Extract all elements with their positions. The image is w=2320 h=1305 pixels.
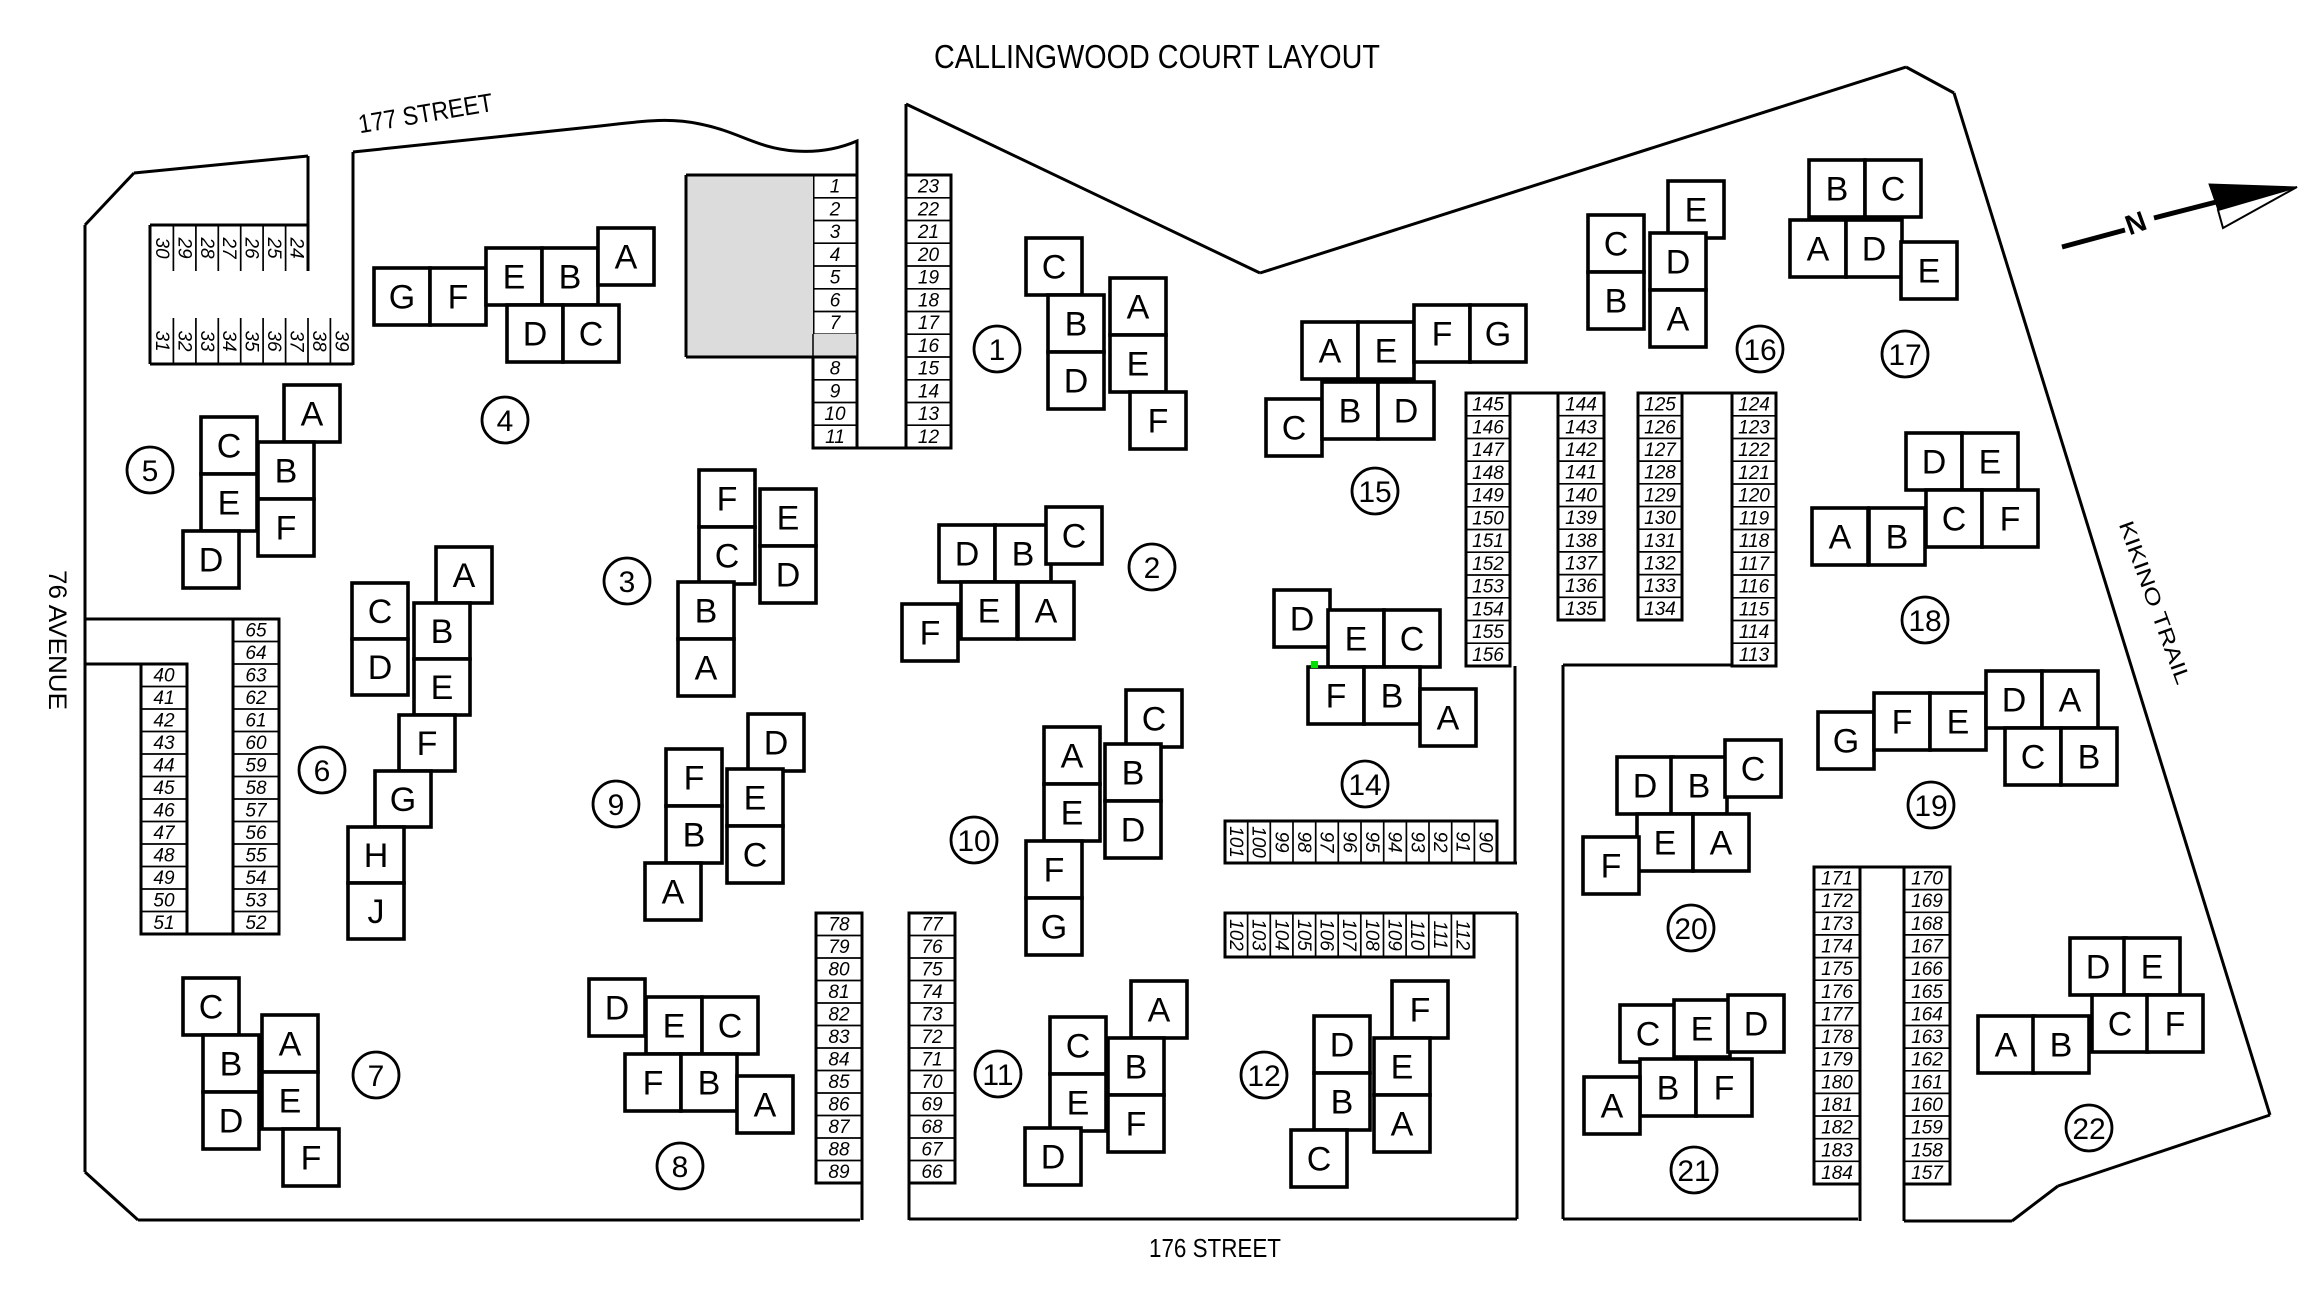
svg-text:72: 72 xyxy=(921,1027,943,1048)
svg-text:94: 94 xyxy=(1384,831,1405,852)
svg-text:C: C xyxy=(1066,1028,1091,1066)
svg-text:20: 20 xyxy=(917,245,940,266)
svg-text:D: D xyxy=(1041,1139,1066,1177)
svg-text:125: 125 xyxy=(1644,395,1676,416)
svg-text:E: E xyxy=(279,1083,302,1121)
svg-text:115: 115 xyxy=(1739,599,1770,620)
svg-text:123: 123 xyxy=(1738,417,1770,438)
svg-text:158: 158 xyxy=(1911,1140,1943,1161)
svg-text:C: C xyxy=(715,538,740,576)
svg-text:63: 63 xyxy=(245,666,267,687)
svg-text:83: 83 xyxy=(828,1027,850,1048)
svg-text:D: D xyxy=(2086,949,2111,987)
svg-text:143: 143 xyxy=(1565,417,1597,438)
svg-text:24: 24 xyxy=(286,236,307,258)
svg-text:33: 33 xyxy=(196,330,217,352)
svg-text:F: F xyxy=(2000,501,2021,539)
svg-text:D: D xyxy=(2002,682,2027,720)
svg-text:131: 131 xyxy=(1644,531,1676,552)
svg-text:67: 67 xyxy=(921,1140,944,1161)
svg-text:29: 29 xyxy=(173,236,194,259)
svg-text:D: D xyxy=(1862,231,1887,269)
svg-text:A: A xyxy=(695,650,718,688)
svg-text:D: D xyxy=(1330,1027,1355,1065)
svg-text:17: 17 xyxy=(1888,339,1921,372)
svg-text:E: E xyxy=(663,1008,686,1046)
svg-text:118: 118 xyxy=(1739,531,1770,552)
svg-text:B: B xyxy=(698,1065,721,1103)
svg-text:95: 95 xyxy=(1361,831,1382,853)
svg-text:B: B xyxy=(275,453,298,491)
svg-text:E: E xyxy=(431,669,454,707)
svg-text:14: 14 xyxy=(1348,769,1381,802)
svg-text:46: 46 xyxy=(153,801,175,822)
svg-text:183: 183 xyxy=(1821,1140,1853,1161)
svg-text:31: 31 xyxy=(151,330,172,351)
svg-text:53: 53 xyxy=(245,891,267,912)
svg-text:35: 35 xyxy=(241,330,262,352)
svg-text:23: 23 xyxy=(917,177,940,198)
svg-text:114: 114 xyxy=(1739,622,1769,643)
svg-text:82: 82 xyxy=(828,1005,850,1026)
svg-text:E: E xyxy=(1345,621,1368,659)
svg-text:A: A xyxy=(1437,700,1460,738)
svg-text:75: 75 xyxy=(921,960,943,981)
svg-text:E: E xyxy=(503,259,526,297)
svg-text:27: 27 xyxy=(218,236,239,260)
svg-text:74: 74 xyxy=(921,982,942,1003)
svg-text:E: E xyxy=(2141,949,2164,987)
svg-text:A: A xyxy=(1601,1088,1624,1126)
svg-text:32: 32 xyxy=(173,330,194,352)
svg-text:10: 10 xyxy=(957,825,990,858)
svg-text:19: 19 xyxy=(1914,790,1947,823)
svg-text:CALLINGWOOD COURT LAYOUT: CALLINGWOOD COURT LAYOUT xyxy=(934,38,1380,75)
svg-text:135: 135 xyxy=(1565,599,1597,620)
svg-text:F: F xyxy=(448,279,469,317)
svg-text:161: 161 xyxy=(1911,1072,1943,1093)
svg-text:A: A xyxy=(615,239,638,277)
svg-text:B: B xyxy=(220,1046,243,1084)
svg-text:E: E xyxy=(744,780,767,818)
svg-text:8: 8 xyxy=(830,359,841,380)
svg-text:F: F xyxy=(276,510,297,548)
svg-text:F: F xyxy=(1126,1106,1147,1144)
svg-text:G: G xyxy=(1833,723,1859,761)
svg-text:21: 21 xyxy=(1677,1155,1710,1188)
svg-text:44: 44 xyxy=(153,756,174,777)
svg-text:E: E xyxy=(218,485,241,523)
svg-text:16: 16 xyxy=(918,336,940,357)
svg-text:3: 3 xyxy=(830,222,841,243)
svg-text:119: 119 xyxy=(1739,508,1770,529)
svg-text:172: 172 xyxy=(1821,891,1853,912)
svg-text:22: 22 xyxy=(917,199,940,220)
svg-text:134: 134 xyxy=(1644,599,1676,620)
svg-text:G: G xyxy=(390,781,416,819)
svg-text:100: 100 xyxy=(1248,826,1269,858)
svg-text:132: 132 xyxy=(1644,554,1676,575)
svg-text:F: F xyxy=(1044,852,1065,890)
svg-text:121: 121 xyxy=(1738,463,1770,484)
svg-text:182: 182 xyxy=(1821,1118,1853,1139)
svg-text:F: F xyxy=(301,1140,322,1178)
svg-text:176 STREET: 176 STREET xyxy=(1149,1233,1281,1263)
svg-text:F: F xyxy=(1892,704,1913,742)
svg-text:78: 78 xyxy=(828,915,850,936)
svg-text:26: 26 xyxy=(241,236,262,259)
svg-text:E: E xyxy=(1061,795,1084,833)
svg-text:F: F xyxy=(2165,1006,2186,1044)
svg-text:C: C xyxy=(217,428,242,466)
svg-text:C: C xyxy=(1741,751,1766,789)
svg-text:F: F xyxy=(684,760,705,798)
svg-text:39: 39 xyxy=(330,330,351,352)
svg-text:B: B xyxy=(1065,306,1088,344)
svg-text:59: 59 xyxy=(245,756,267,777)
svg-text:C: C xyxy=(368,593,393,631)
svg-text:171: 171 xyxy=(1821,869,1853,890)
svg-text:97: 97 xyxy=(1316,831,1337,854)
svg-text:B: B xyxy=(431,613,454,651)
svg-text:D: D xyxy=(764,725,789,763)
svg-text:159: 159 xyxy=(1911,1118,1943,1139)
svg-text:51: 51 xyxy=(153,913,174,934)
svg-text:7: 7 xyxy=(368,1060,385,1093)
svg-text:A: A xyxy=(1829,519,1852,557)
svg-text:165: 165 xyxy=(1911,982,1943,1003)
svg-text:103: 103 xyxy=(1248,919,1269,951)
svg-text:57: 57 xyxy=(245,801,268,822)
svg-text:169: 169 xyxy=(1911,891,1943,912)
svg-text:62: 62 xyxy=(245,688,267,709)
svg-text:107: 107 xyxy=(1338,919,1359,952)
svg-text:55: 55 xyxy=(245,846,267,867)
svg-text:109: 109 xyxy=(1384,919,1405,951)
svg-text:A: A xyxy=(301,396,324,434)
svg-text:C: C xyxy=(718,1008,743,1046)
svg-text:D: D xyxy=(605,990,630,1028)
svg-text:173: 173 xyxy=(1821,914,1853,935)
svg-text:E: E xyxy=(1691,1011,1714,1049)
svg-text:E: E xyxy=(978,593,1001,631)
svg-text:60: 60 xyxy=(245,733,267,754)
svg-text:117: 117 xyxy=(1739,554,1771,575)
svg-text:86: 86 xyxy=(828,1095,850,1116)
svg-text:A: A xyxy=(1148,992,1171,1030)
svg-text:101: 101 xyxy=(1225,826,1246,858)
svg-text:130: 130 xyxy=(1644,508,1676,529)
svg-text:A: A xyxy=(1061,738,1084,776)
svg-text:155: 155 xyxy=(1472,622,1504,643)
svg-text:D: D xyxy=(1922,444,1947,482)
svg-text:73: 73 xyxy=(921,1005,943,1026)
svg-text:A: A xyxy=(754,1087,777,1125)
svg-text:42: 42 xyxy=(153,711,175,732)
svg-text:F: F xyxy=(643,1065,664,1103)
svg-text:B: B xyxy=(683,817,706,855)
svg-text:C: C xyxy=(1636,1016,1661,1054)
svg-text:162: 162 xyxy=(1911,1050,1943,1071)
svg-text:11: 11 xyxy=(825,427,845,448)
svg-text:C: C xyxy=(579,316,604,354)
svg-text:J: J xyxy=(368,893,385,931)
svg-text:E: E xyxy=(1067,1085,1090,1123)
svg-text:152: 152 xyxy=(1472,554,1504,575)
svg-text:F: F xyxy=(1410,992,1431,1030)
svg-text:A: A xyxy=(453,557,476,595)
svg-text:52: 52 xyxy=(245,913,267,934)
svg-text:6: 6 xyxy=(314,755,331,788)
svg-text:12: 12 xyxy=(918,427,940,448)
svg-text:154: 154 xyxy=(1472,599,1504,620)
svg-text:160: 160 xyxy=(1911,1095,1943,1116)
svg-text:4: 4 xyxy=(830,245,841,266)
svg-text:C: C xyxy=(1400,621,1425,659)
svg-text:C: C xyxy=(1282,410,1307,448)
svg-text:40: 40 xyxy=(153,666,175,687)
svg-text:106: 106 xyxy=(1316,919,1337,951)
svg-text:50: 50 xyxy=(153,891,175,912)
svg-text:D: D xyxy=(1290,601,1315,639)
svg-text:65: 65 xyxy=(245,621,267,642)
svg-text:B: B xyxy=(2078,739,2101,777)
svg-text:E: E xyxy=(1375,333,1398,371)
svg-text:18: 18 xyxy=(1908,605,1941,638)
svg-text:A: A xyxy=(1667,301,1690,339)
svg-text:77: 77 xyxy=(921,915,944,936)
svg-text:B: B xyxy=(1886,519,1909,557)
svg-text:184: 184 xyxy=(1821,1163,1853,1184)
svg-text:81: 81 xyxy=(828,982,849,1003)
svg-text:A: A xyxy=(279,1026,302,1064)
svg-text:A: A xyxy=(2059,682,2082,720)
svg-text:163: 163 xyxy=(1911,1027,1943,1048)
svg-text:49: 49 xyxy=(153,868,175,889)
svg-text:38: 38 xyxy=(308,330,329,352)
svg-text:D: D xyxy=(1633,768,1658,806)
svg-text:54: 54 xyxy=(245,868,266,889)
svg-text:166: 166 xyxy=(1911,959,1943,980)
svg-text:D: D xyxy=(1064,363,1089,401)
svg-text:3: 3 xyxy=(619,566,636,599)
svg-text:148: 148 xyxy=(1472,463,1504,484)
svg-text:13: 13 xyxy=(918,404,940,425)
svg-text:144: 144 xyxy=(1565,395,1597,416)
svg-text:H: H xyxy=(364,837,389,875)
svg-text:116: 116 xyxy=(1739,577,1770,598)
svg-text:66: 66 xyxy=(921,1162,943,1183)
svg-text:D: D xyxy=(1744,1006,1769,1044)
svg-text:147: 147 xyxy=(1472,440,1505,461)
svg-text:99: 99 xyxy=(1270,831,1291,853)
svg-text:87: 87 xyxy=(828,1117,851,1138)
svg-text:127: 127 xyxy=(1644,440,1677,461)
svg-text:25: 25 xyxy=(263,236,284,259)
svg-text:C: C xyxy=(2108,1006,2133,1044)
svg-text:F: F xyxy=(1326,678,1347,716)
svg-text:D: D xyxy=(776,557,801,595)
svg-text:14: 14 xyxy=(918,381,939,402)
svg-text:149: 149 xyxy=(1472,486,1504,507)
svg-text:D: D xyxy=(199,542,224,580)
svg-text:D: D xyxy=(955,536,980,574)
svg-text:61: 61 xyxy=(245,711,266,732)
svg-text:76: 76 xyxy=(921,937,943,958)
svg-text:C: C xyxy=(743,837,768,875)
svg-text:A: A xyxy=(1807,231,1830,269)
svg-text:168: 168 xyxy=(1911,914,1943,935)
svg-text:174: 174 xyxy=(1821,937,1853,958)
svg-text:1: 1 xyxy=(830,177,841,198)
svg-text:176: 176 xyxy=(1821,982,1853,1003)
svg-text:84: 84 xyxy=(828,1050,849,1071)
svg-text:153: 153 xyxy=(1472,577,1504,598)
svg-text:146: 146 xyxy=(1472,417,1504,438)
svg-text:93: 93 xyxy=(1406,831,1427,853)
svg-text:105: 105 xyxy=(1293,919,1314,951)
svg-text:B: B xyxy=(1657,1070,1680,1108)
svg-text:90: 90 xyxy=(1474,831,1495,853)
svg-text:177: 177 xyxy=(1821,1004,1854,1025)
svg-text:C: C xyxy=(1942,501,1967,539)
svg-text:21: 21 xyxy=(917,222,939,243)
svg-text:122: 122 xyxy=(1738,440,1770,461)
svg-text:22: 22 xyxy=(2072,1113,2105,1146)
svg-text:41: 41 xyxy=(153,688,174,709)
svg-text:137: 137 xyxy=(1565,554,1598,575)
svg-text:92: 92 xyxy=(1429,831,1450,853)
svg-text:128: 128 xyxy=(1644,463,1676,484)
svg-text:120: 120 xyxy=(1738,486,1770,507)
svg-text:30: 30 xyxy=(151,237,172,259)
svg-text:D: D xyxy=(1121,812,1146,850)
svg-text:B: B xyxy=(2050,1027,2073,1065)
svg-text:B: B xyxy=(1339,393,1362,431)
svg-text:178: 178 xyxy=(1821,1027,1853,1048)
svg-text:139: 139 xyxy=(1565,508,1597,529)
svg-text:91: 91 xyxy=(1452,831,1473,852)
svg-text:4: 4 xyxy=(497,405,514,438)
svg-text:B: B xyxy=(1605,283,1628,321)
svg-text:16: 16 xyxy=(1743,334,1776,367)
svg-text:157: 157 xyxy=(1911,1163,1944,1184)
svg-text:15: 15 xyxy=(918,359,940,380)
svg-text:A: A xyxy=(1319,333,1342,371)
svg-text:20: 20 xyxy=(1674,913,1707,946)
svg-text:B: B xyxy=(559,259,582,297)
svg-text:7: 7 xyxy=(830,313,842,334)
svg-text:43: 43 xyxy=(153,733,175,754)
svg-text:69: 69 xyxy=(921,1095,943,1116)
svg-text:C: C xyxy=(1062,518,1087,556)
svg-text:2: 2 xyxy=(1144,552,1161,585)
svg-text:71: 71 xyxy=(921,1050,942,1071)
svg-text:136: 136 xyxy=(1565,576,1597,597)
svg-text:A: A xyxy=(1710,825,1733,863)
svg-text:112: 112 xyxy=(1451,920,1472,951)
svg-text:5: 5 xyxy=(830,268,841,289)
svg-text:A: A xyxy=(1995,1027,2018,1065)
svg-text:111: 111 xyxy=(1429,921,1450,950)
svg-text:B: B xyxy=(1012,536,1035,574)
svg-text:140: 140 xyxy=(1565,485,1597,506)
svg-text:E: E xyxy=(1127,346,1150,384)
svg-text:179: 179 xyxy=(1821,1050,1853,1071)
svg-text:E: E xyxy=(1654,825,1677,863)
svg-text:F: F xyxy=(1714,1070,1735,1108)
svg-text:180: 180 xyxy=(1821,1072,1853,1093)
svg-text:141: 141 xyxy=(1565,463,1597,484)
svg-text:G: G xyxy=(1485,316,1511,354)
svg-text:E: E xyxy=(1918,253,1941,291)
svg-text:E: E xyxy=(1947,704,1970,742)
svg-text:9: 9 xyxy=(830,381,841,402)
svg-text:B: B xyxy=(1125,1049,1148,1087)
svg-text:5: 5 xyxy=(142,455,159,488)
svg-text:E: E xyxy=(1979,444,2002,482)
svg-text:88: 88 xyxy=(828,1140,850,1161)
svg-text:B: B xyxy=(695,593,718,631)
svg-text:102: 102 xyxy=(1225,919,1246,951)
svg-text:G: G xyxy=(389,279,415,317)
svg-text:19: 19 xyxy=(918,268,940,289)
svg-text:E: E xyxy=(777,500,800,538)
svg-text:108: 108 xyxy=(1361,919,1382,951)
svg-text:80: 80 xyxy=(828,960,850,981)
svg-text:C: C xyxy=(1604,226,1629,264)
svg-text:A: A xyxy=(1035,593,1058,631)
svg-text:85: 85 xyxy=(828,1072,850,1093)
svg-text:A: A xyxy=(1127,289,1150,327)
svg-text:C: C xyxy=(1142,701,1167,739)
svg-text:F: F xyxy=(717,481,738,519)
svg-text:156: 156 xyxy=(1472,645,1504,666)
svg-text:58: 58 xyxy=(245,778,267,799)
svg-text:76 AVENUE: 76 AVENUE xyxy=(43,570,71,710)
svg-text:79: 79 xyxy=(828,937,850,958)
svg-text:48: 48 xyxy=(153,846,175,867)
svg-text:D: D xyxy=(1394,393,1419,431)
svg-text:150: 150 xyxy=(1472,508,1504,529)
svg-text:18: 18 xyxy=(918,290,940,311)
svg-text:104: 104 xyxy=(1270,919,1291,951)
svg-text:B: B xyxy=(1122,755,1145,793)
svg-text:138: 138 xyxy=(1565,531,1597,552)
svg-text:129: 129 xyxy=(1644,485,1676,506)
svg-text:9: 9 xyxy=(608,789,625,822)
svg-text:64: 64 xyxy=(245,643,266,664)
svg-text:6: 6 xyxy=(830,290,841,311)
svg-text:167: 167 xyxy=(1911,937,1944,958)
svg-text:145: 145 xyxy=(1472,395,1504,416)
svg-text:8: 8 xyxy=(672,1151,689,1184)
svg-text:110: 110 xyxy=(1406,920,1427,951)
svg-text:C: C xyxy=(2021,739,2046,777)
svg-text:F: F xyxy=(1432,316,1453,354)
svg-text:28: 28 xyxy=(196,236,217,259)
svg-text:45: 45 xyxy=(153,778,175,799)
svg-text:133: 133 xyxy=(1644,576,1676,597)
svg-text:B: B xyxy=(1826,171,1849,209)
svg-text:A: A xyxy=(662,874,685,912)
svg-text:175: 175 xyxy=(1821,959,1853,980)
svg-text:113: 113 xyxy=(1739,645,1770,666)
svg-text:C: C xyxy=(1881,171,1906,209)
svg-text:E: E xyxy=(1685,192,1708,230)
svg-text:C: C xyxy=(1307,1141,1332,1179)
svg-text:98: 98 xyxy=(1293,831,1314,853)
